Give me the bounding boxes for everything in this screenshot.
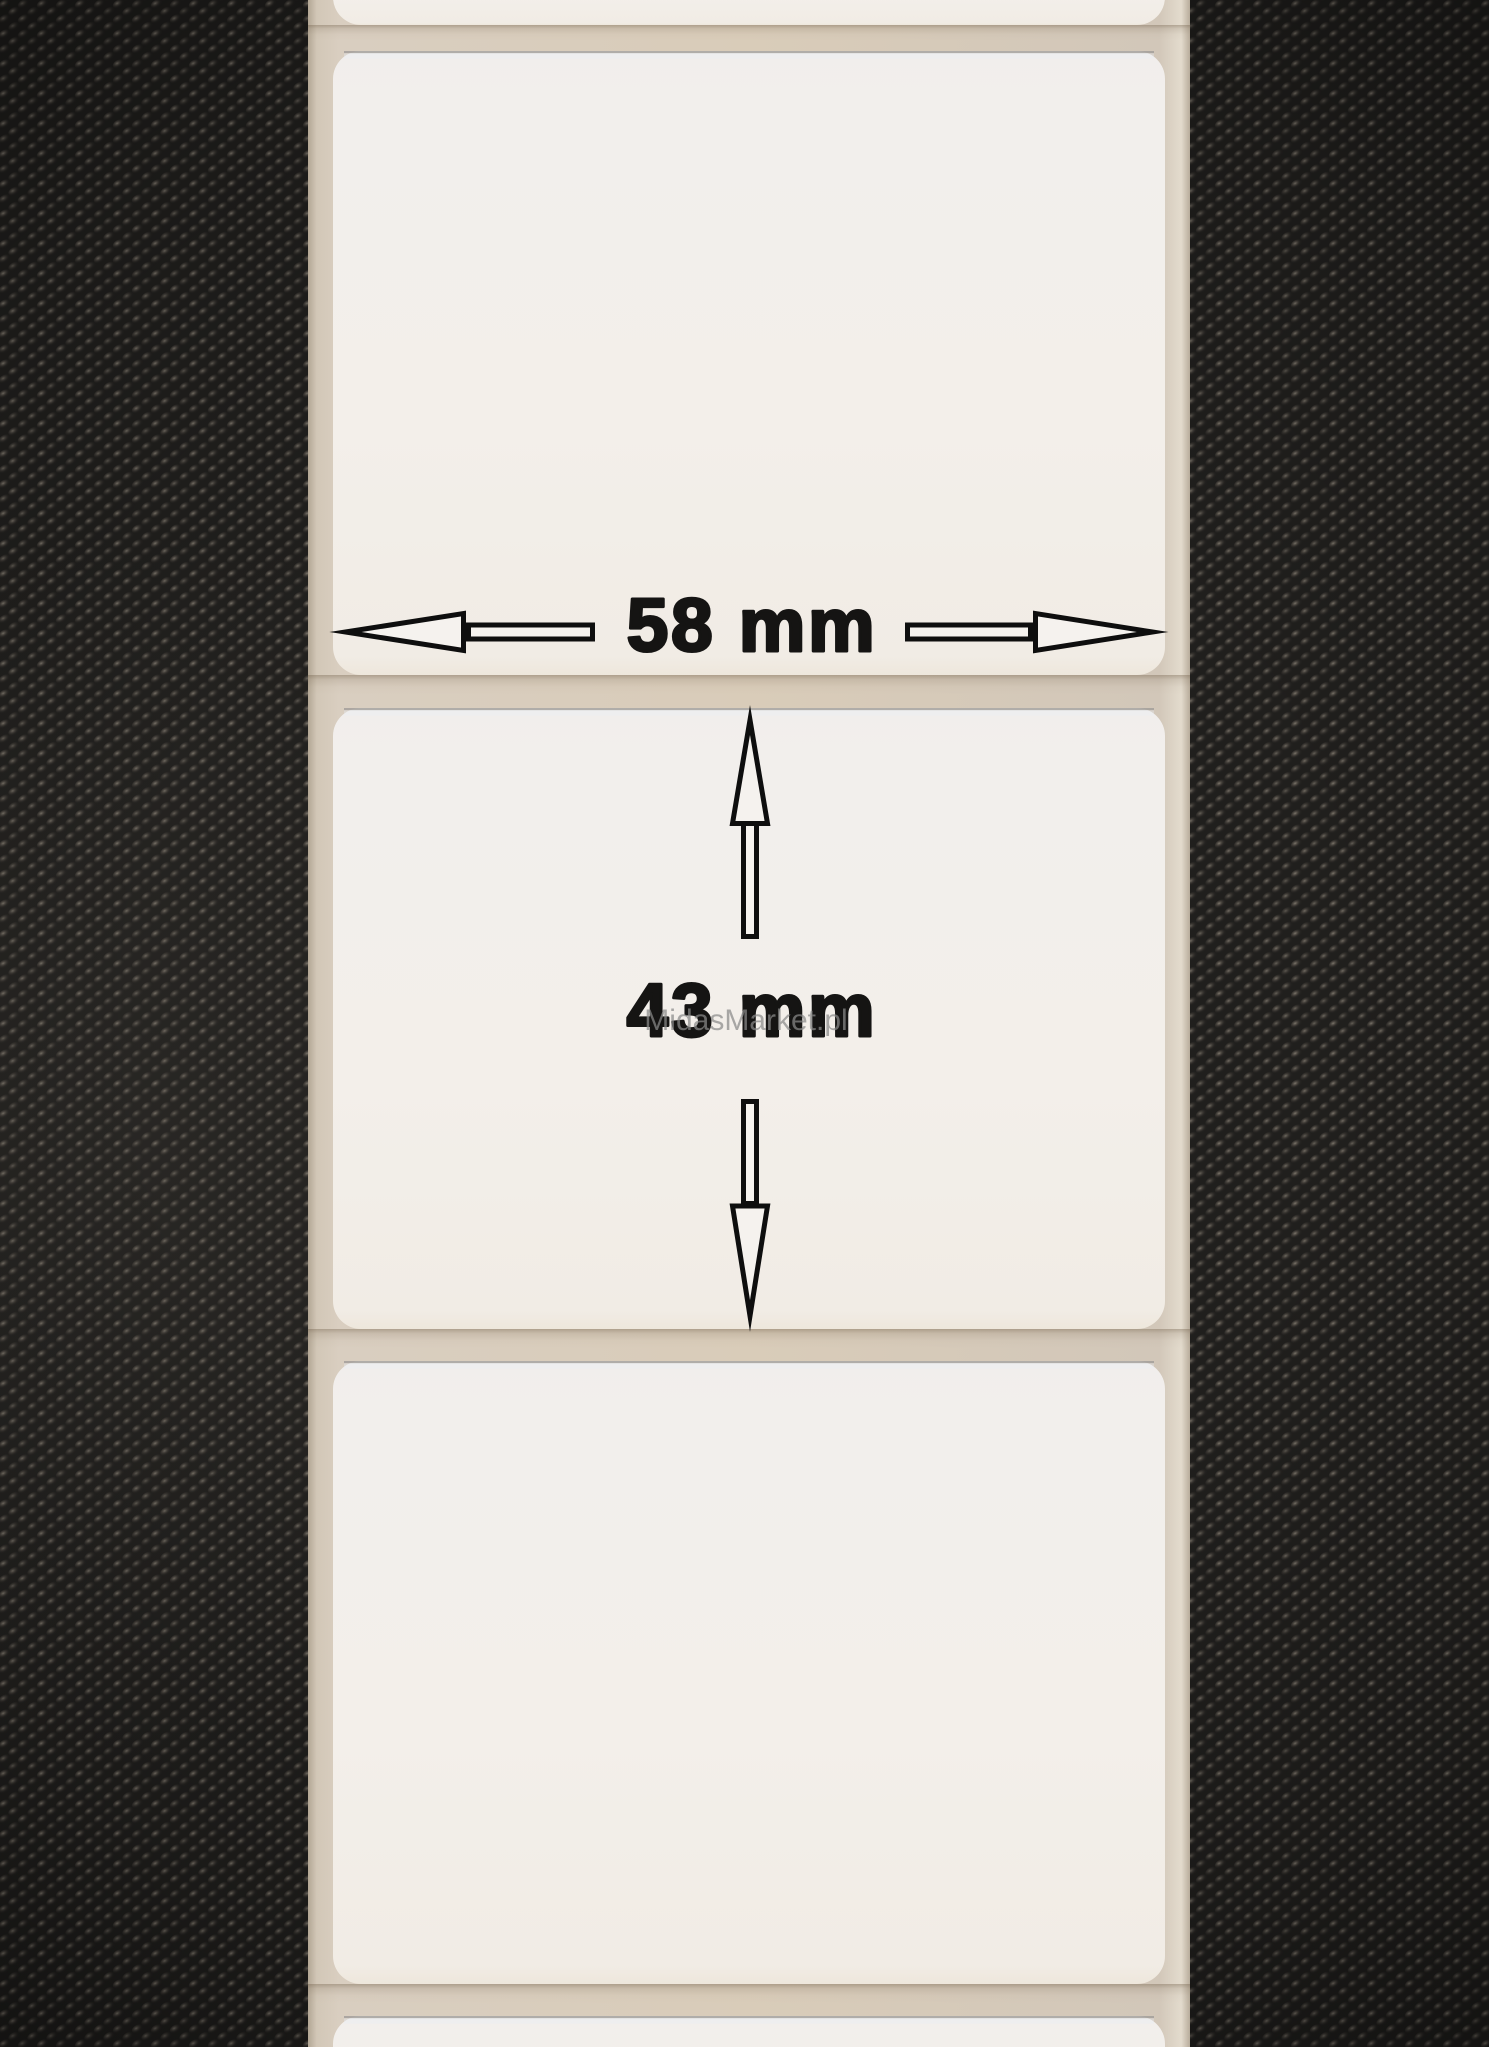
svg-text:MidasMarket.pl: MidasMarket.pl — [644, 1004, 847, 1037]
svg-text:58 mm: 58 mm — [627, 583, 878, 667]
